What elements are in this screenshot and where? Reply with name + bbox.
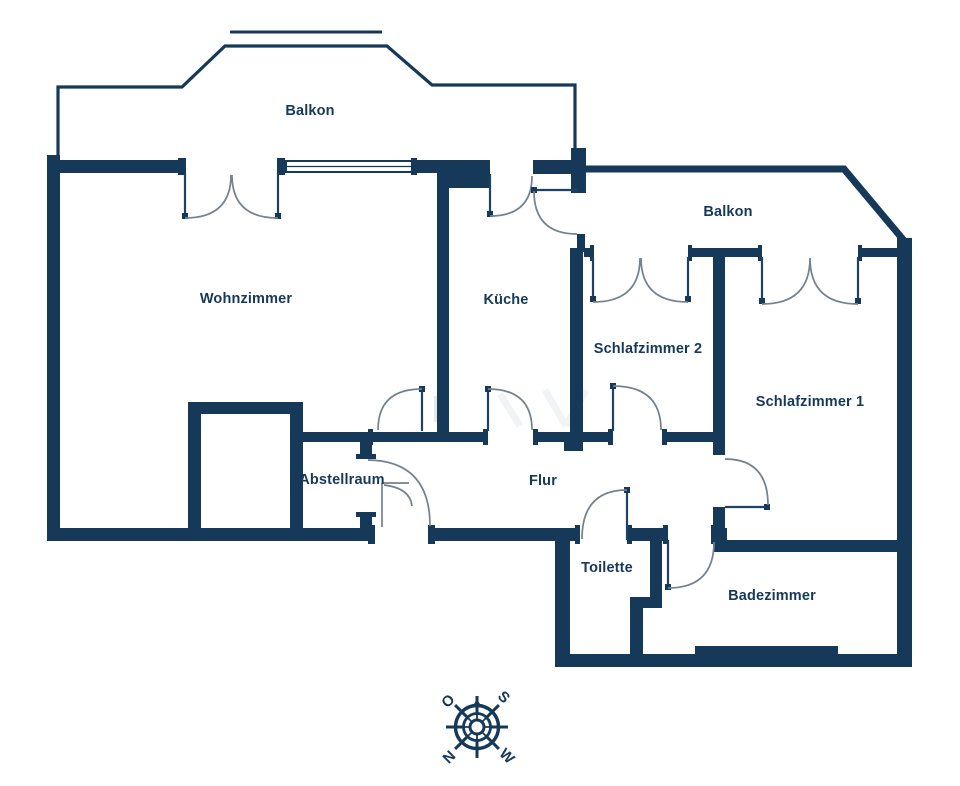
compass-letter-east: O xyxy=(438,691,459,712)
compass-letter-north: N xyxy=(440,748,460,768)
room-label-balkon-left: Balkon xyxy=(285,103,334,119)
window xyxy=(286,158,417,175)
room-label-schlafzimmer-2: Schlafzimmer 2 xyxy=(594,341,702,357)
floorplan-canvas: O S N W Balkon Wohnzimmer Küche Balkon S… xyxy=(0,0,960,786)
floor-plan: O S N W xyxy=(0,0,960,786)
room-label-badezimmer: Badezimmer xyxy=(728,588,816,604)
room-label-schlafzimmer-1: Schlafzimmer 1 xyxy=(756,394,864,410)
room-label-flur: Flur xyxy=(529,473,557,489)
door-arcs xyxy=(182,173,861,590)
watermark xyxy=(434,390,586,426)
room-label-balkon-right: Balkon xyxy=(703,204,752,220)
room-label-wohnzimmer: Wohnzimmer xyxy=(200,291,292,307)
compass-rose-icon: O S N W xyxy=(438,688,518,768)
room-label-toilette: Toilette xyxy=(581,560,633,576)
room-label-abstellraum: Abstellraum xyxy=(299,472,384,488)
room-label-kueche: Küche xyxy=(483,292,528,308)
compass-letter-south: S xyxy=(494,688,513,707)
